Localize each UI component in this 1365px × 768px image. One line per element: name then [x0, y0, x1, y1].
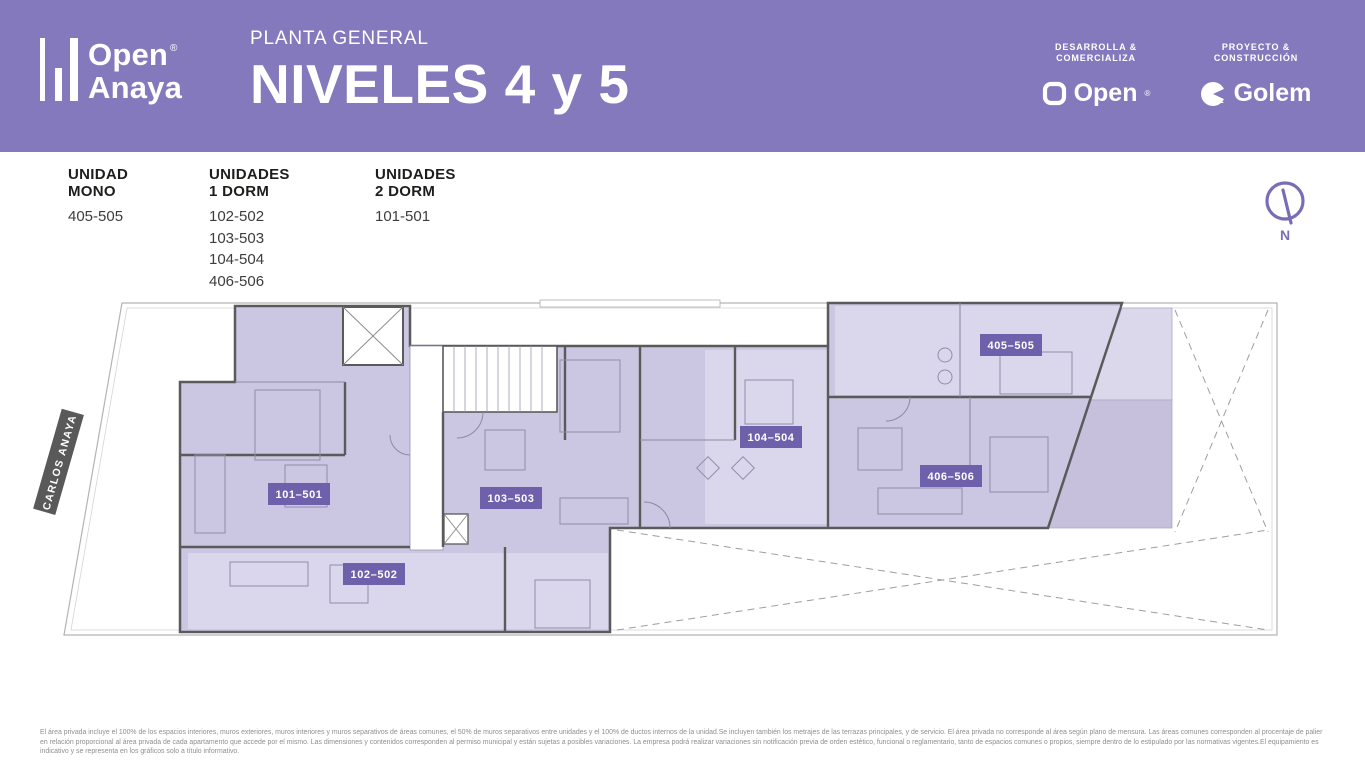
floor-plan: CARLOS ANAYA 101–501 102–502 103–503 104…	[30, 295, 1280, 645]
legend-item: 406-506	[209, 271, 290, 293]
legend-item: 103-503	[209, 228, 290, 250]
page-title: NIVELES 4 y 5	[250, 52, 629, 116]
north-compass-icon: N	[1257, 172, 1313, 244]
unit-badge-102-502: 102–502	[343, 563, 405, 585]
open-anaya-logotype: Open® Anaya	[88, 32, 182, 104]
open-logo-icon	[1042, 81, 1067, 106]
svg-text:406–506: 406–506	[927, 471, 974, 483]
unit-badge-103-503: 103–503	[480, 487, 542, 509]
svg-text:405–505: 405–505	[987, 340, 1034, 352]
disclaimer-text: El área privada incluye el 100% de los e…	[40, 728, 1326, 757]
legend-column-mono: UNIDAD MONO 405-505	[68, 166, 128, 228]
logo-bar	[55, 68, 62, 101]
legend-heading: UNIDADES 1 DORM	[209, 166, 290, 200]
legend-item: 101-501	[375, 206, 456, 228]
svg-text:104–504: 104–504	[747, 432, 794, 444]
partner-brand-open: Open	[1074, 79, 1138, 108]
partner-brand-golem: Golem	[1234, 79, 1312, 108]
logo-brand-top: Open	[88, 37, 168, 72]
svg-text:102–502: 102–502	[350, 569, 397, 581]
svg-text:103–503: 103–503	[487, 493, 534, 505]
unit-badge-406-506: 406–506	[920, 465, 982, 487]
legend-column-1dorm: UNIDADES 1 DORM 102-502 103-503 104-504 …	[209, 166, 290, 292]
registered-mark: ®	[170, 43, 178, 54]
legend-item: 104-504	[209, 249, 290, 271]
unit-badge-104-504: 104–504	[740, 426, 802, 448]
north-label: N	[1280, 227, 1290, 243]
legend-item: 405-505	[68, 206, 128, 228]
header-band: Open® Anaya PLANTA GENERAL NIVELES 4 y 5…	[0, 0, 1365, 152]
partner-developer: DESARROLLA & COMERCIALIZA Open®	[1034, 42, 1158, 108]
partner-role-line: DESARROLLA &	[1034, 42, 1158, 53]
logo-bar	[70, 38, 78, 101]
balcony-slab	[540, 300, 720, 307]
elevator-shaft-icon	[444, 514, 468, 544]
unit-badge-405-505: 405–505	[980, 334, 1042, 356]
logo-bar	[40, 38, 45, 101]
partner-builder: PROYECTO & CONSTRUCCIÓN Golem	[1190, 42, 1322, 108]
legend-heading: UNIDAD MONO	[68, 166, 128, 200]
lightwell	[410, 346, 443, 550]
unit-badge-101-501: 101–501	[268, 483, 330, 505]
partner-role-line: CONSTRUCCIÓN	[1190, 53, 1322, 64]
registered-mark: ®	[1145, 89, 1151, 98]
legend-column-2dorm: UNIDADES 2 DORM 101-501	[375, 166, 456, 228]
partner-role-line: PROYECTO &	[1190, 42, 1322, 53]
street-label: CARLOS ANAYA	[33, 409, 84, 515]
elevator-shaft-icon	[343, 307, 403, 365]
north-compass: N	[1257, 172, 1313, 244]
page-subtitle: PLANTA GENERAL	[250, 28, 629, 50]
legend-heading: UNIDADES 2 DORM	[375, 166, 456, 200]
golem-logo-icon	[1201, 81, 1227, 107]
title-block: PLANTA GENERAL NIVELES 4 y 5	[250, 28, 629, 116]
legend-item: 102-502	[209, 206, 290, 228]
stair-core	[443, 346, 557, 412]
partner-role-line: COMERCIALIZA	[1034, 53, 1158, 64]
logo-brand-bottom: Anaya	[88, 71, 182, 104]
open-anaya-logo-icon	[40, 37, 80, 101]
svg-text:101–501: 101–501	[275, 489, 322, 501]
